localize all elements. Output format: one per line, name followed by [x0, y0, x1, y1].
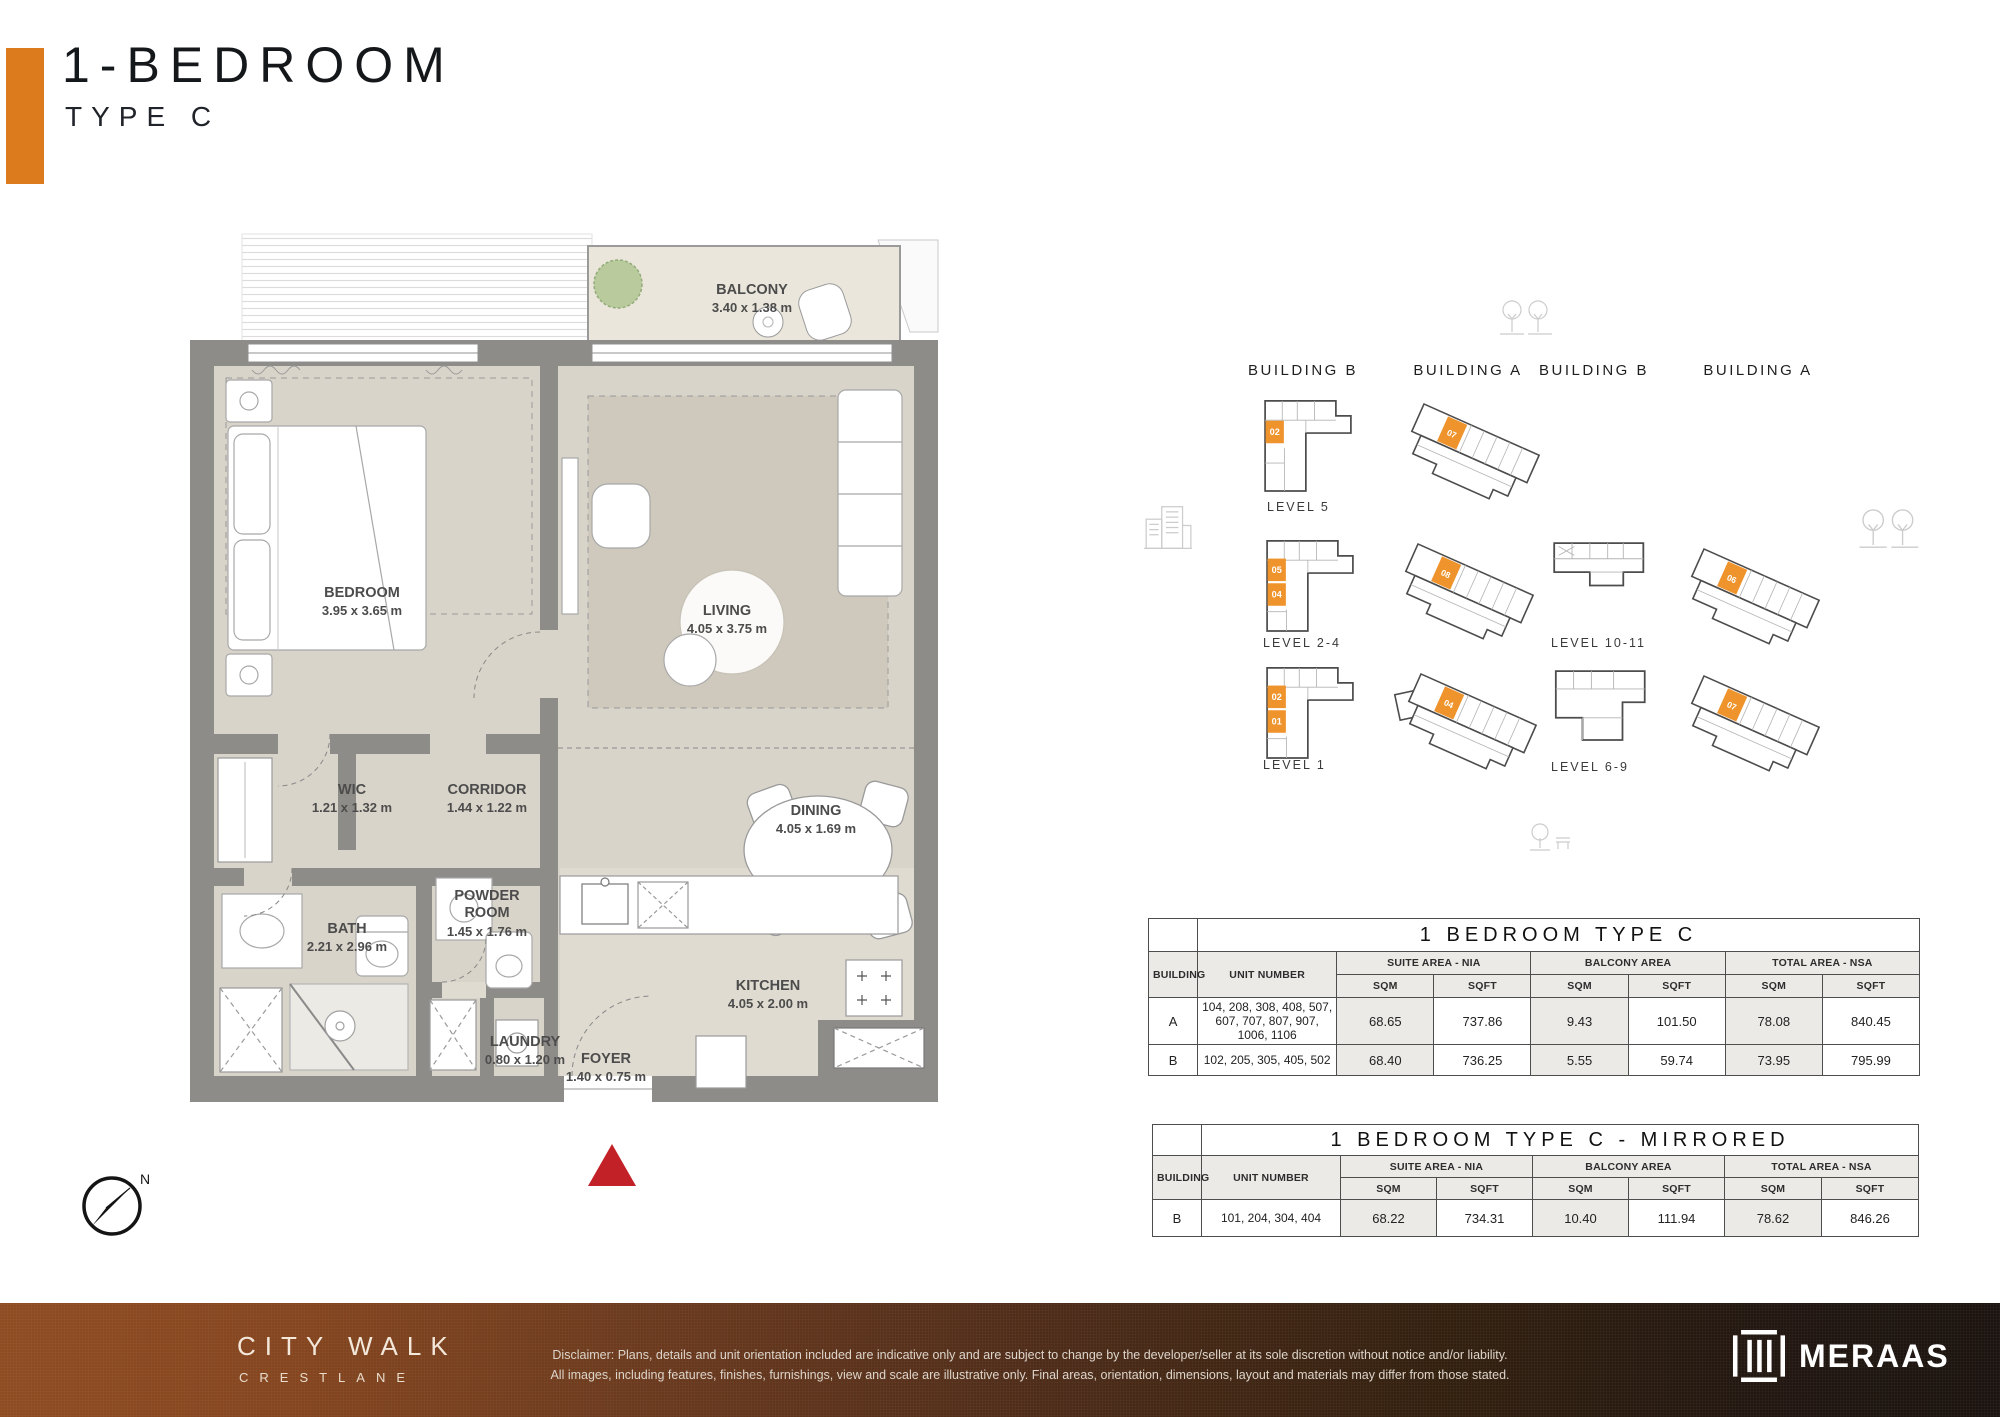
shutter-hatch [242, 234, 592, 342]
city-icon [1142, 498, 1194, 556]
disclaimer-line-2: All images, including features, finishes… [487, 1365, 1573, 1385]
area-table-type-c-mirrored: 1 BEDROOM TYPE C - MIRRORED BUILDING UNI… [1152, 1124, 1918, 1237]
keyplan-a-level2-4: 08 [1392, 540, 1552, 680]
col-header-building: BUILDING [1149, 952, 1198, 998]
armchair [592, 484, 650, 548]
accent-block [6, 48, 44, 184]
sub-header: SQFT [1628, 975, 1725, 998]
entrance-marker [588, 1144, 636, 1186]
disclaimer-line-1: Disclaimer: Plans, details and unit orie… [487, 1345, 1573, 1365]
group-header-total: TOTAL AREA - NSA [1725, 1156, 1919, 1178]
table-row: A 104, 208, 308, 408, 507, 607, 707, 807… [1149, 998, 1920, 1045]
tv-console [562, 458, 578, 614]
room-label-corridor: CORRIDOR1.44 x 1.22 m [447, 782, 527, 816]
unit-badge: 04 [1272, 590, 1283, 600]
sub-header: SQFT [1434, 975, 1531, 998]
table-title: 1 BEDROOM TYPE C [1198, 919, 1920, 952]
sub-header: SQFT [1822, 975, 1919, 998]
keyplan-b-level1: 02 01 [1250, 655, 1370, 773]
brand-crestlane: CRESTLANE [239, 1370, 416, 1385]
unit-badge: 05 [1272, 565, 1282, 575]
unit-badge: 02 [1270, 427, 1280, 437]
room-label-kitchen: KITCHEN4.05 x 2.00 m [728, 978, 808, 1012]
area-table-type-c: 1 BEDROOM TYPE C BUILDING UNIT NUMBER SU… [1148, 918, 1920, 1076]
sub-header: SQM [1531, 975, 1628, 998]
room-label-wic: WIC1.21 x 1.32 m [312, 782, 392, 816]
unit-badge: 02 [1272, 692, 1282, 702]
sub-header: SQM [1725, 1178, 1822, 1200]
sofa [838, 390, 902, 596]
sub-header: SQM [1337, 975, 1434, 998]
compass-icon: N [62, 1152, 162, 1252]
sub-header: SQM [1341, 1178, 1437, 1200]
table-title: 1 BEDROOM TYPE C - MIRRORED [1202, 1125, 1919, 1156]
sub-header: SQFT [1822, 1178, 1919, 1200]
sub-header: SQM [1725, 975, 1822, 998]
building-header-2: BUILDING A [1413, 362, 1522, 379]
keyplan-a-level6-9: 07 [1678, 672, 1838, 812]
building-header-3: BUILDING B [1539, 362, 1649, 379]
building-header-4: BUILDING A [1703, 362, 1812, 379]
disclaimer: Disclaimer: Plans, details and unit orie… [487, 1345, 1573, 1385]
room-label-dining: DINING4.05 x 1.69 m [776, 803, 856, 837]
hob [846, 960, 902, 1016]
table-corner-cell [1153, 1125, 1202, 1156]
north-label: N [140, 1171, 150, 1187]
table-corner-cell [1149, 919, 1198, 952]
sub-header: SQFT [1629, 1178, 1725, 1200]
sub-header: SQM [1533, 1178, 1629, 1200]
floorplan-brochure-page: { "page": { "title": "1-BEDROOM", "subti… [0, 0, 2000, 1417]
keyplan-a-level10-11: 06 [1678, 545, 1838, 685]
keyplan-a-level5: 07 [1398, 400, 1558, 540]
building-header-1: BUILDING B [1248, 362, 1358, 379]
bench-icon [1528, 820, 1576, 858]
keyplan-a-level1: 04 [1385, 668, 1555, 818]
page-title: 1-BEDROOM [62, 36, 455, 94]
col-header-unit-number: UNIT NUMBER [1202, 1156, 1341, 1200]
table-row: B 102, 205, 305, 405, 502 68.40 736.25 5… [1149, 1045, 1920, 1076]
unit-badge: 01 [1272, 717, 1282, 727]
fridge [696, 1036, 746, 1088]
level-label-6-9: LEVEL 6-9 [1551, 760, 1629, 774]
col-header-unit-number: UNIT NUMBER [1198, 952, 1337, 998]
table-row: B 101, 204, 304, 404 68.22 734.31 10.40 … [1153, 1200, 1919, 1237]
group-header-balcony: BALCONY AREA [1533, 1156, 1725, 1178]
sub-header: SQFT [1437, 1178, 1533, 1200]
brand-citywalk: CITY WALK [237, 1331, 457, 1362]
meraas-icon [1733, 1330, 1785, 1382]
group-header-suite: SUITE AREA - NIA [1341, 1156, 1533, 1178]
keyplan-b-level2-4: 05 04 [1250, 528, 1370, 646]
room-label-bath: BATH2.21 x 2.96 m [307, 921, 387, 955]
group-header-total: TOTAL AREA - NSA [1725, 952, 1919, 975]
keyplan-b-level6-9 [1545, 660, 1660, 760]
planter-icon [594, 260, 642, 308]
sink [582, 884, 628, 924]
group-header-balcony: BALCONY AREA [1531, 952, 1725, 975]
group-header-suite: SUITE AREA - NIA [1337, 952, 1531, 975]
keyplan-b-level5: 02 [1252, 388, 1364, 506]
keyplan-b-level10-11 [1545, 532, 1657, 610]
level-label-10-11: LEVEL 10-11 [1551, 636, 1646, 650]
col-header-building: BUILDING [1153, 1156, 1202, 1200]
room-label-living: LIVING4.05 x 3.75 m [687, 603, 767, 637]
trees-icon [1498, 294, 1554, 340]
meraas-wordmark: MERAAS [1799, 1338, 1950, 1375]
powder-toilet [486, 932, 532, 988]
room-label-powder-room: POWDER ROOM1.45 x 1.76 m [443, 888, 531, 939]
room-label-balcony: BALCONY3.40 x 1.38 m [712, 282, 792, 316]
room-label-bedroom: BEDROOM3.95 x 3.65 m [322, 585, 402, 619]
room-label-foyer: FOYER1.40 x 0.75 m [566, 1051, 646, 1085]
page-subtitle: TYPE C [65, 101, 220, 133]
closet [220, 988, 282, 1072]
trees-icon-2 [1855, 502, 1923, 554]
vanity [222, 894, 302, 968]
room-label-laundry: LAUNDRY0.80 x 1.20 m [485, 1034, 565, 1068]
meraas-logo: MERAAS [1733, 1330, 1950, 1382]
